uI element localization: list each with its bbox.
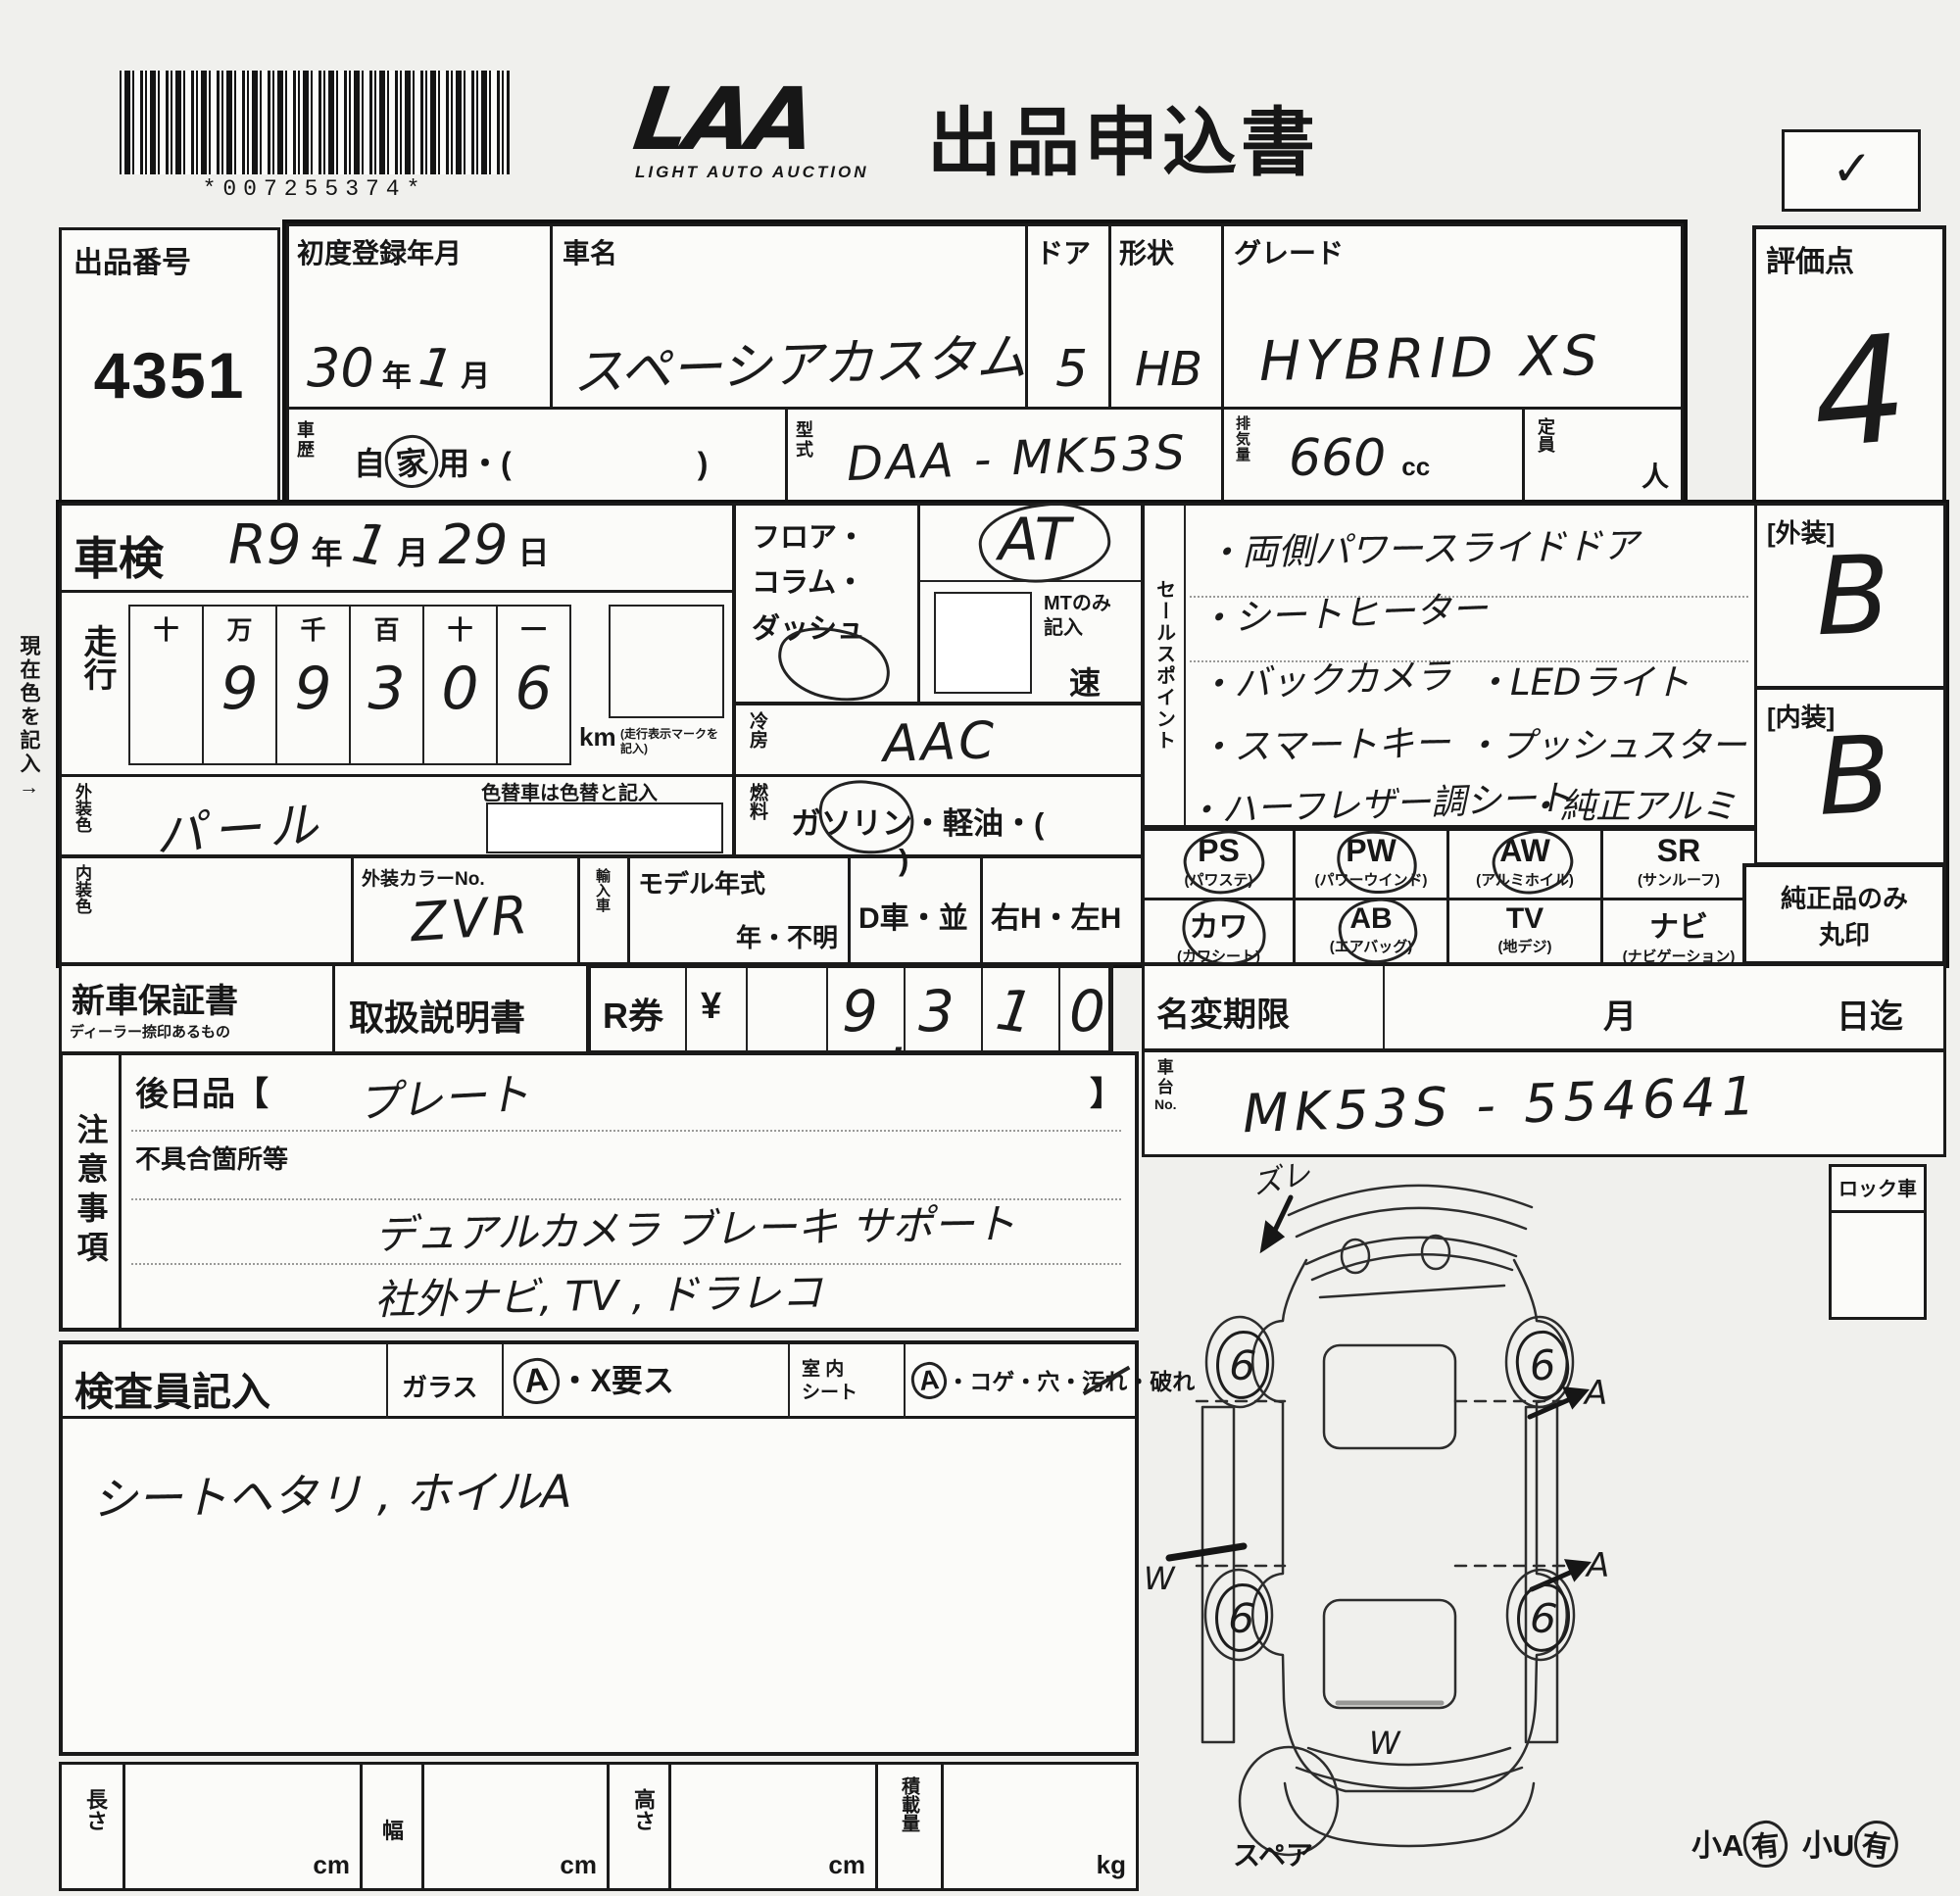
shaken-year-unit: 年 bbox=[312, 528, 343, 573]
width-unit: cm bbox=[560, 1850, 597, 1880]
lock-car-label: ロック車 bbox=[1838, 1179, 1917, 1200]
score-value: 4 bbox=[1806, 304, 1914, 482]
equip-code: AW bbox=[1449, 833, 1600, 869]
interior-color-cell: 内装色 bbox=[59, 855, 354, 965]
shift-position-cell: フロア・ コラム・ ダッシュ bbox=[733, 503, 920, 705]
inspector-label: 検査員記入 bbox=[74, 1360, 270, 1417]
equip-code: SR bbox=[1603, 833, 1754, 869]
chassis-number-row: 車 台 No. MK53S - 554641 bbox=[1142, 1049, 1946, 1157]
name-change-day-unit: 日迄 bbox=[1837, 990, 1903, 1038]
equip-ps: PS (パワステ) bbox=[1142, 828, 1296, 900]
sales-points-label: セールスポイント bbox=[1151, 579, 1179, 752]
equip-pw: PW (パワーウインド) bbox=[1293, 828, 1449, 900]
transmission-cell: AT MTのみ 記入 速 bbox=[917, 503, 1144, 705]
shift-floor: フロア・ bbox=[752, 515, 865, 560]
equip-navi: ナビ (ナビゲーション) bbox=[1600, 898, 1757, 965]
later-items-label: 後日品【 bbox=[135, 1067, 269, 1115]
warranty-sub: ディーラー捺印あるもの bbox=[70, 1021, 230, 1042]
equip-name: (地デジ) bbox=[1449, 936, 1600, 956]
model-year-label: モデル年式 bbox=[638, 864, 765, 900]
auction-sheet: 現在色を記入→ *007255374* LAA LIGHT AUTO AUCTI… bbox=[0, 0, 1960, 1896]
fuel-label: 燃料 bbox=[744, 783, 770, 820]
mt-only-note-1: MTのみ bbox=[1044, 592, 1111, 616]
first-registration-cell: 初度登録年月 30 年 1 月 bbox=[286, 223, 553, 410]
history-pre: 自 bbox=[354, 446, 385, 481]
mileage-digit: 0 bbox=[441, 655, 478, 723]
height-unit: cm bbox=[828, 1850, 865, 1880]
color-no-label: 外装カラーNo. bbox=[362, 864, 485, 891]
lock-car-box bbox=[1829, 1210, 1927, 1320]
color-no-cell: 外装カラーNo. ZVR bbox=[351, 855, 580, 965]
equip-tv: TV (地デジ) bbox=[1446, 898, 1603, 965]
equip-code: PS bbox=[1145, 833, 1293, 869]
height-value-cell: cm bbox=[668, 1762, 878, 1891]
history-circled-option: 家 bbox=[382, 432, 440, 490]
doors-value: 5 bbox=[1055, 340, 1088, 399]
car-name-cell: 車名 スペーシアカスタム bbox=[550, 223, 1028, 410]
length-unit: cm bbox=[313, 1850, 350, 1880]
displacement-cell: 排気量 660 cc bbox=[1221, 407, 1525, 506]
ac-row: 冷房 AAC bbox=[733, 703, 1144, 777]
seat-options-pre: ・コゲ・穴・ bbox=[947, 1369, 1082, 1394]
glass-circled-option: A bbox=[512, 1356, 562, 1407]
name-change-label: 名変期限 bbox=[1156, 988, 1290, 1036]
load-label-cell: 積載量 bbox=[875, 1762, 944, 1891]
fuel-circled: ソリ bbox=[821, 806, 882, 841]
equip-sr: SR (サンルーフ) bbox=[1600, 828, 1757, 900]
name-change-row: 名変期限 月 日迄 bbox=[1142, 963, 1946, 1051]
grade-value: HYBRID XS bbox=[1258, 324, 1602, 394]
mileage-row: 走行 十 万 9 千 9 百 3 十 0 一 bbox=[59, 590, 735, 777]
margin-note: 現在色を記入→ bbox=[14, 635, 43, 802]
capacity-cell: 定員 人 bbox=[1522, 407, 1684, 506]
equip-code: TV bbox=[1449, 902, 1600, 936]
panel-mark-rear: W bbox=[1369, 1725, 1400, 1762]
mt-only-note-2: 記入 bbox=[1044, 616, 1111, 641]
ticket-digit: 0 bbox=[1069, 978, 1105, 1045]
shaken-day-unit: 日 bbox=[517, 528, 549, 573]
interior-rating-box: [内装] B bbox=[1754, 687, 1946, 865]
seat-option-struck: 汚れ bbox=[1082, 1363, 1127, 1396]
equip-aw: AW (アルミホイル) bbox=[1446, 828, 1603, 900]
name-change-month-unit: 月 bbox=[1603, 990, 1637, 1038]
width-label-cell: 幅 bbox=[360, 1762, 424, 1891]
equip-name: (パワステ) bbox=[1145, 869, 1293, 890]
later-items-close: 】 bbox=[1090, 1067, 1123, 1115]
mileage-unit-note: (走行表示マークを記入) bbox=[620, 727, 728, 755]
fuel-row: 燃料 ガソリン・軽油・() bbox=[733, 774, 1144, 857]
mileage-mark-box bbox=[609, 605, 724, 718]
equip-code: カワ bbox=[1145, 902, 1293, 946]
ac-label: 冷房 bbox=[744, 711, 770, 749]
seat-label-2: シート bbox=[802, 1382, 857, 1405]
small-damage-options: 小A有 小U有 bbox=[1691, 1821, 1898, 1868]
checkmark-icon: ✓ bbox=[1832, 140, 1873, 197]
transmission-value: AT bbox=[999, 506, 1070, 574]
mileage-header: 万 bbox=[226, 610, 252, 647]
d-car-options: D車・並 bbox=[858, 894, 968, 937]
interior-rating-value: B bbox=[1815, 713, 1894, 840]
model-code-value: DAA - MK53S bbox=[846, 425, 1189, 492]
fuel-p1: ガ bbox=[791, 806, 821, 841]
damage-diagram: ズレ 6 6 6 6 A A W W bbox=[1142, 1154, 1945, 1896]
notes-box: 注意事項 後日品【 プレート 】 不具合箇所等 デュアルカメラ ブレーキ サポー… bbox=[59, 1051, 1139, 1332]
shaken-month: 1 bbox=[347, 510, 392, 579]
page-title: 出品申込書 bbox=[927, 82, 1319, 190]
color-no-value: ZVR bbox=[409, 884, 534, 953]
equip-name: (サンルーフ) bbox=[1603, 869, 1754, 890]
mileage-unit: km bbox=[579, 722, 616, 752]
fuel-close: ) bbox=[899, 843, 908, 877]
dimensions-row: 長さ cm 幅 cm 高さ cm 積載量 kg bbox=[59, 1762, 1139, 1891]
lock-car-label-box: ロック車 bbox=[1829, 1164, 1927, 1213]
sales-point-item: ・バックカメラ bbox=[1197, 646, 1452, 707]
barcode-text: *007255374* bbox=[120, 176, 510, 202]
shaken-row: 車検 R9 年 1 月 29 日 bbox=[59, 503, 735, 593]
interior-color-label: 内装色 bbox=[70, 864, 94, 914]
color-change-note: 色替車は色替と記入 bbox=[481, 777, 658, 805]
exterior-color-label: 外装色 bbox=[70, 783, 94, 833]
chassis-label-2: 台 bbox=[1154, 1078, 1177, 1097]
seat-label-1: 室 内 bbox=[802, 1358, 857, 1382]
notes-line2: 社外ナビ, TV , ドラレコ bbox=[374, 1259, 823, 1327]
history-label-1: 車 bbox=[297, 421, 315, 441]
equip-name: (パワーウインド) bbox=[1296, 869, 1446, 890]
spare-tire-label: スペア bbox=[1233, 1834, 1313, 1873]
lot-number-value: 4351 bbox=[62, 338, 277, 413]
genuine-note-line2: 丸印 bbox=[1746, 915, 1942, 951]
sales-points-box: セールスポイント ・両側パワースライドドア ・シートヒーター ・バックカメラ ・… bbox=[1142, 503, 1757, 828]
barcode bbox=[120, 71, 510, 174]
history-close: ) bbox=[698, 446, 709, 481]
small-u-label: 小U bbox=[1802, 1828, 1854, 1863]
inspector-box: 検査員記入 ガラス A・X要ス 室 内 シート A・コゲ・穴・汚れ・破れ シート… bbox=[59, 1340, 1139, 1756]
recycle-ticket-label: R券 bbox=[603, 988, 663, 1039]
mt-speed-box bbox=[934, 592, 1032, 694]
sales-point-item: ・スマートキー bbox=[1198, 713, 1451, 770]
car-name-label: 車名 bbox=[563, 232, 617, 271]
body-shape-cell: 形状 HB bbox=[1108, 223, 1224, 410]
mileage-header: 百 bbox=[373, 610, 399, 647]
displacement-value: 660 bbox=[1289, 429, 1386, 488]
shaken-era: R9 bbox=[228, 513, 302, 577]
ticket-digit: 1 bbox=[992, 976, 1037, 1046]
history-post: 用・( bbox=[438, 446, 512, 481]
shaken-label: 車検 bbox=[73, 523, 164, 588]
equipment-grid: PS (パワステ) PW (パワーウインド) AW (アルミホイル) SR (サ… bbox=[1142, 828, 1757, 965]
mileage-digit: 3 bbox=[367, 655, 405, 723]
length-label: 長さ bbox=[79, 1788, 111, 1831]
accepted-checkbox: ✓ bbox=[1782, 129, 1921, 212]
sales-point-item: ・プッシュスタート bbox=[1464, 717, 1782, 768]
sales-point-item: ・両側パワースライドドア bbox=[1205, 515, 1640, 576]
car-outline-drawing bbox=[1142, 1154, 1945, 1896]
month-unit: 月 bbox=[461, 352, 490, 395]
equip-ab: AB (エアバッグ) bbox=[1293, 898, 1449, 965]
capacity-unit: 人 bbox=[1641, 456, 1669, 495]
ac-value: AAC bbox=[882, 711, 998, 774]
score-label: 評価点 bbox=[1766, 237, 1854, 280]
door-mark-rear-right: A bbox=[1587, 1546, 1609, 1585]
mileage-digit: 9 bbox=[220, 655, 258, 723]
load-value-cell: kg bbox=[941, 1762, 1139, 1891]
exterior-rating-value: B bbox=[1814, 532, 1892, 660]
warranty-cell: 新車保証書 ディーラー捺印あるもの bbox=[59, 963, 335, 1055]
height-label-cell: 高さ bbox=[607, 1762, 671, 1891]
shaken-day: 29 bbox=[438, 513, 508, 577]
car-name-value: スペーシアカスタム bbox=[571, 316, 1028, 405]
exterior-color-row: 外装色 パール 色替車は色替と記入 bbox=[59, 774, 735, 857]
fuel-p2: ン・軽油・( bbox=[882, 806, 1044, 841]
import-car-cell: 輸入車 bbox=[577, 855, 630, 965]
body-shape-label: 形状 bbox=[1119, 232, 1174, 271]
sales-point-item: ・シートヒーター bbox=[1197, 579, 1489, 642]
mileage-header: 千 bbox=[300, 610, 325, 647]
mileage-digit: 9 bbox=[294, 655, 331, 723]
grade-cell: グレード HYBRID XS bbox=[1221, 223, 1684, 410]
sales-point-item: ・ハーフレザー調シート bbox=[1185, 769, 1572, 834]
shift-column: コラム・ bbox=[752, 560, 865, 606]
chassis-number-value: MK53S - 554641 bbox=[1242, 1065, 1762, 1144]
laa-logo-text: LAA bbox=[629, 78, 874, 161]
year-unit: 年 bbox=[382, 352, 412, 395]
glass-options: ・X要ス bbox=[560, 1363, 674, 1398]
ticket-digit: 9 bbox=[842, 978, 878, 1045]
genuine-parts-note: 純正品のみ 丸印 bbox=[1742, 863, 1946, 965]
width-label: 幅 bbox=[382, 1814, 404, 1845]
capacity-label: 定員 bbox=[1533, 417, 1558, 453]
genuine-note-line1: 純正品のみ bbox=[1746, 879, 1942, 915]
mileage-digit: 6 bbox=[514, 655, 552, 723]
chassis-label-1: 車 bbox=[1154, 1058, 1177, 1078]
mileage-header: 一 bbox=[520, 610, 546, 647]
notes-line1: デュアルカメラ ブレーキ サポート bbox=[374, 1191, 1016, 1261]
exterior-rating-box: [外装] B bbox=[1754, 503, 1946, 689]
model-code-label-1: 型 bbox=[796, 421, 813, 441]
width-value-cell: cm bbox=[421, 1762, 610, 1891]
first-registration-year: 30 bbox=[307, 337, 374, 399]
panel-mark-left: W bbox=[1144, 1560, 1175, 1597]
inspector-note: シートヘタリ , ホイルA bbox=[91, 1456, 571, 1530]
small-a-circled-mark: 有 bbox=[1741, 1819, 1790, 1870]
equip-name: (アルミホイル) bbox=[1449, 869, 1600, 890]
warranty-label: 新車保証書 bbox=[72, 974, 238, 1022]
yen-symbol: ¥ bbox=[701, 986, 721, 1028]
mileage-label: 走行 bbox=[73, 624, 122, 691]
color-change-box bbox=[486, 802, 723, 853]
first-registration-label: 初度登録年月 bbox=[297, 232, 462, 271]
laa-logo: LAA LIGHT AUTO AUCTION bbox=[635, 78, 868, 182]
manual-label: 取扱説明書 bbox=[349, 990, 525, 1041]
handle-options: 右H・左H bbox=[991, 894, 1121, 937]
model-year-unknown: 年・不明 bbox=[736, 918, 838, 954]
displacement-label: 排気量 bbox=[1232, 415, 1252, 462]
mileage-header: 十 bbox=[153, 610, 178, 647]
model-code-label-2: 式 bbox=[796, 441, 813, 461]
speed-unit: 速 bbox=[1069, 658, 1101, 704]
later-items-value: プレート bbox=[355, 1058, 530, 1130]
mileage-digit-table: 十 万 9 千 9 百 3 十 0 一 6 bbox=[128, 605, 571, 765]
length-value-cell: cm bbox=[122, 1762, 363, 1891]
load-label: 積載量 bbox=[896, 1776, 922, 1832]
import-car-label: 輸入車 bbox=[592, 868, 612, 912]
equip-code: PW bbox=[1296, 833, 1446, 869]
first-registration-month: 1 bbox=[416, 335, 458, 401]
doors-label: ドア bbox=[1036, 232, 1091, 271]
usage-history-cell: 車 歴 自家用・() bbox=[286, 407, 788, 506]
equip-code: AB bbox=[1296, 902, 1446, 936]
length-label-cell: 長さ bbox=[59, 1762, 125, 1891]
small-u-circled-mark: 有 bbox=[1851, 1818, 1901, 1871]
door-mark-front-right: A bbox=[1585, 1374, 1607, 1413]
equip-code: ナビ bbox=[1603, 902, 1754, 946]
history-label-2: 歴 bbox=[297, 441, 315, 461]
sales-point-item: ・純正アルミ bbox=[1525, 778, 1737, 829]
lot-number-box: 出品番号 4351 bbox=[59, 227, 280, 506]
grade-label: グレード bbox=[1234, 232, 1344, 271]
lot-number-label: 出品番号 bbox=[73, 238, 191, 281]
defect-label: 不具合箇所等 bbox=[135, 1140, 288, 1176]
sales-point-item: ・LEDライト bbox=[1474, 653, 1690, 705]
shift-dash: ダッシュ bbox=[752, 607, 865, 652]
doors-cell: ドア 5 bbox=[1025, 223, 1111, 410]
glass-label: ガラス bbox=[402, 1368, 477, 1404]
equip-name: (エアバッグ) bbox=[1296, 936, 1446, 956]
small-a-label: 小A bbox=[1691, 1828, 1743, 1863]
shaken-month-unit: 月 bbox=[397, 528, 428, 573]
height-label: 高さ bbox=[627, 1788, 659, 1831]
load-unit: kg bbox=[1097, 1850, 1126, 1880]
manual-cell: 取扱説明書 bbox=[332, 963, 589, 1055]
score-box: 評価点 4 bbox=[1752, 225, 1946, 506]
model-code-cell: 型 式 DAA - MK53S bbox=[785, 407, 1224, 506]
displacement-unit: cc bbox=[1401, 452, 1430, 482]
chassis-label-3: No. bbox=[1154, 1096, 1177, 1112]
ticket-digit: 3 bbox=[918, 978, 955, 1045]
notes-label: 注意事項 bbox=[69, 1113, 114, 1270]
seat-circled-option: A bbox=[909, 1360, 949, 1401]
equip-leather: カワ (カワシート) bbox=[1142, 898, 1296, 965]
mileage-header: 十 bbox=[447, 610, 472, 647]
recycle-ticket-box: R券 ¥ 9 , 3 1 0 bbox=[586, 963, 1113, 1055]
body-shape-value: HB bbox=[1135, 342, 1202, 397]
